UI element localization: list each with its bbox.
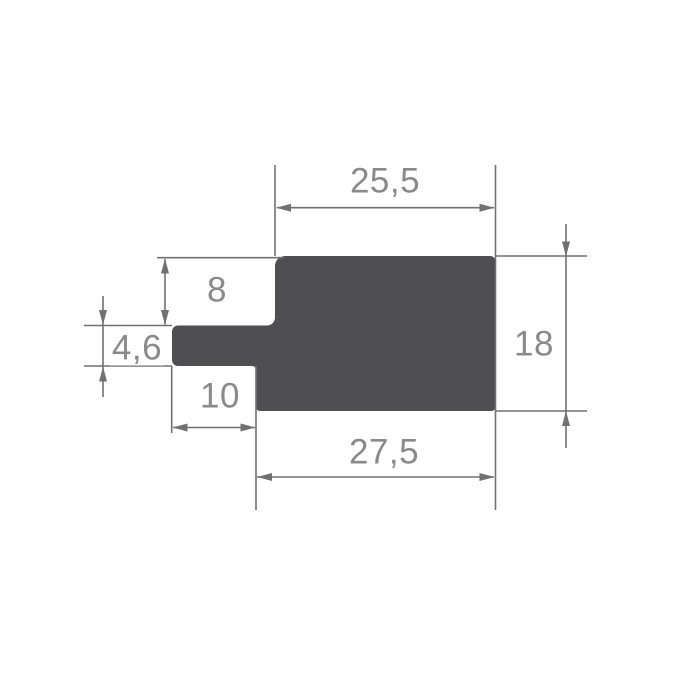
- arrow-right-icon: [480, 473, 495, 481]
- dim-label-bottom-width: 27,5: [347, 435, 421, 470]
- profile-drawing: [0, 0, 680, 680]
- arrow-right-icon: [241, 424, 256, 432]
- arrow-left-icon: [173, 424, 188, 432]
- dim-label-tab-length: 10: [198, 379, 242, 414]
- arrow-up-icon: [161, 259, 169, 274]
- dim-label-top-width: 25,5: [348, 164, 422, 199]
- dim-label-tab-thickness: 4,6: [110, 331, 164, 366]
- arrow-down-icon: [99, 310, 107, 325]
- arrow-up-icon: [562, 411, 570, 426]
- arrow-down-icon: [161, 310, 169, 325]
- drawing-canvas: 25,5 8 4,6 10 18 27,5: [0, 0, 680, 680]
- dim-line-top-width: [276, 204, 495, 212]
- dim-line-tab-length: [173, 424, 256, 432]
- arrow-right-icon: [480, 204, 495, 212]
- dim-line-right-height: [562, 224, 570, 448]
- arrow-left-icon: [257, 473, 272, 481]
- dim-label-right-height: 18: [512, 327, 556, 362]
- arrow-left-icon: [276, 204, 291, 212]
- dim-line-bottom-width: [257, 473, 495, 481]
- arrow-up-icon: [99, 367, 107, 382]
- dim-line-left-upper-height: [161, 259, 169, 326]
- dim-line-tab-thickness: [99, 296, 107, 397]
- dim-label-left-upper-height: 8: [205, 273, 229, 308]
- arrow-down-icon: [562, 242, 570, 257]
